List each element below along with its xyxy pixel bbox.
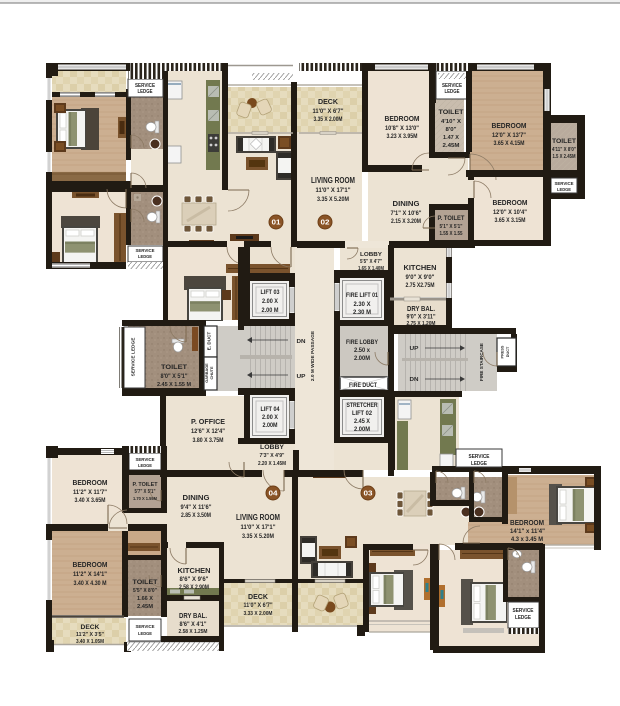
svg-text:4.3 x 3.45 M: 4.3 x 3.45 M — [511, 536, 543, 543]
svg-text:2.00 X: 2.00 X — [262, 415, 278, 421]
svg-text:2.15 X 3.20M: 2.15 X 3.20M — [391, 218, 421, 225]
svg-text:2.20 X 1.45M: 2.20 X 1.45M — [258, 461, 286, 467]
svg-text:SERVICE: SERVICE — [136, 248, 156, 254]
svg-text:12'0" X 13'7": 12'0" X 13'7" — [492, 132, 526, 139]
svg-text:04: 04 — [269, 491, 278, 498]
svg-text:CHUTE: CHUTE — [210, 366, 214, 380]
svg-text:2.45M: 2.45M — [443, 143, 460, 149]
svg-text:P. TOILET: P. TOILET — [438, 216, 465, 222]
svg-text:LEDGE: LEDGE — [557, 187, 572, 193]
svg-text:2.85 X 3.50M: 2.85 X 3.50M — [181, 512, 211, 519]
svg-text:UP: UP — [410, 346, 420, 352]
svg-text:DN: DN — [410, 377, 419, 383]
svg-text:4'11" X 8'0": 4'11" X 8'0" — [552, 147, 577, 153]
svg-text:SERVICE: SERVICE — [136, 624, 156, 630]
svg-text:LIVING ROOM: LIVING ROOM — [236, 513, 280, 522]
svg-text:P. OFFICE: P. OFFICE — [191, 417, 225, 426]
svg-text:DRY BAL.: DRY BAL. — [179, 613, 207, 620]
svg-text:8'0": 8'0" — [446, 127, 457, 133]
svg-text:DN: DN — [297, 339, 306, 345]
svg-text:SERVICE: SERVICE — [469, 454, 490, 460]
svg-text:5'1" X 5'1": 5'1" X 5'1" — [440, 224, 463, 230]
svg-text:1.5 X 2.45M: 1.5 X 2.45M — [553, 154, 576, 160]
svg-text:LIFT 03: LIFT 03 — [261, 289, 280, 296]
svg-text:7'1" X 10'6": 7'1" X 10'6" — [391, 210, 422, 217]
svg-text:FIRE LIFT 01: FIRE LIFT 01 — [346, 292, 378, 299]
svg-text:UP: UP — [297, 374, 307, 380]
svg-text:TOILET: TOILET — [161, 364, 188, 371]
svg-text:5'5" X 4'7": 5'5" X 4'7" — [360, 259, 382, 265]
svg-text:FIRE DUCT: FIRE DUCT — [349, 382, 377, 389]
svg-text:2.00M: 2.00M — [354, 356, 370, 362]
svg-text:BEDROOM: BEDROOM — [73, 560, 108, 569]
svg-text:DINING: DINING — [393, 199, 420, 208]
svg-text:11'0" X 6'7": 11'0" X 6'7" — [313, 108, 344, 115]
svg-text:LIVING ROOM: LIVING ROOM — [311, 176, 355, 185]
svg-text:2.58 X 1.25M: 2.58 X 1.25M — [179, 629, 208, 635]
svg-text:2.75 X 1.20M: 2.75 X 1.20M — [407, 321, 436, 327]
svg-text:3.33 X 2.00M: 3.33 X 2.00M — [244, 611, 273, 617]
svg-text:FIRE STAIRCASE: FIRE STAIRCASE — [479, 343, 484, 381]
svg-text:2.30 X: 2.30 X — [354, 302, 371, 308]
svg-text:3.40 X 3.65M: 3.40 X 3.65M — [75, 497, 106, 504]
svg-text:E. DUCT: E. DUCT — [207, 332, 212, 351]
svg-text:1.70 X 1.55M: 1.70 X 1.55M — [133, 496, 157, 502]
svg-text:2.45 X: 2.45 X — [354, 419, 370, 425]
svg-text:9'4" X 11'6": 9'4" X 11'6" — [181, 504, 212, 511]
svg-text:1.65 X 1.40M: 1.65 X 1.40M — [358, 266, 384, 272]
svg-text:03: 03 — [364, 491, 373, 498]
svg-text:DINING: DINING — [183, 493, 210, 502]
svg-text:5'5" X 8'0": 5'5" X 8'0" — [133, 588, 157, 594]
svg-text:3.35 X 2.00M: 3.35 X 2.00M — [314, 117, 343, 123]
svg-text:11'0" X 17'1": 11'0" X 17'1" — [241, 524, 276, 531]
svg-text:BEDROOM: BEDROOM — [492, 121, 527, 130]
svg-text:DRY BAL.: DRY BAL. — [407, 306, 435, 313]
svg-text:1.47 X: 1.47 X — [443, 135, 459, 141]
svg-text:10'8" X 13'0": 10'8" X 13'0" — [385, 125, 419, 132]
svg-text:7'3" X 4'9": 7'3" X 4'9" — [260, 453, 285, 459]
svg-text:11'0" X 6'7": 11'0" X 6'7" — [244, 603, 273, 609]
svg-text:DECK: DECK — [318, 97, 339, 106]
svg-text:2.00M: 2.00M — [354, 427, 370, 433]
svg-text:P. TOILET: P. TOILET — [133, 482, 158, 488]
svg-text:11'2" X 11'7": 11'2" X 11'7" — [73, 489, 107, 496]
svg-text:8'0" X 5'1": 8'0" X 5'1" — [161, 374, 188, 380]
svg-text:5'7" X 5'1": 5'7" X 5'1" — [135, 489, 157, 495]
svg-text:2.0 M WIDE PASSAGE: 2.0 M WIDE PASSAGE — [310, 330, 316, 381]
svg-text:9'0" X 9'0": 9'0" X 9'0" — [406, 274, 435, 281]
svg-text:2.50 x: 2.50 x — [354, 348, 371, 354]
svg-text:8'6" X 9'6": 8'6" X 9'6" — [180, 576, 209, 583]
svg-text:GARBAGE: GARBAGE — [205, 363, 209, 383]
svg-text:TOILET: TOILET — [439, 109, 464, 116]
svg-text:LEDGE: LEDGE — [138, 254, 153, 260]
svg-text:BEDROOM: BEDROOM — [73, 478, 108, 487]
svg-text:3.35 X 5.20M: 3.35 X 5.20M — [242, 533, 274, 540]
svg-text:BEDROOM: BEDROOM — [493, 198, 528, 207]
svg-text:LOBBY: LOBBY — [360, 252, 382, 258]
svg-text:SERVICE LEDGE: SERVICE LEDGE — [131, 337, 137, 377]
svg-text:01: 01 — [272, 220, 281, 227]
svg-text:2.45 X 1.55 M: 2.45 X 1.55 M — [157, 382, 191, 388]
svg-text:KITCHEN: KITCHEN — [178, 566, 211, 575]
svg-text:LEDGE: LEDGE — [445, 89, 461, 95]
svg-text:SERVICE: SERVICE — [555, 181, 575, 187]
svg-text:LEDGE: LEDGE — [138, 631, 153, 637]
svg-text:12'0" X 10'4": 12'0" X 10'4" — [493, 209, 527, 216]
svg-text:1.55 X 1.55: 1.55 X 1.55 — [440, 231, 463, 237]
svg-text:2.00 X: 2.00 X — [262, 299, 278, 305]
svg-text:14'1" x 11'4": 14'1" x 11'4" — [510, 528, 545, 535]
svg-text:LEDGE: LEDGE — [138, 89, 154, 95]
svg-text:11'0" X 17'1": 11'0" X 17'1" — [316, 187, 351, 194]
svg-text:3.40 X 1.05M: 3.40 X 1.05M — [76, 639, 104, 645]
svg-text:LEDGE: LEDGE — [515, 615, 531, 621]
svg-text:11'2" X 3'5": 11'2" X 3'5" — [76, 632, 104, 638]
svg-text:3.65 X 4.15M: 3.65 X 4.15M — [494, 140, 525, 147]
svg-text:DECK: DECK — [81, 624, 100, 631]
svg-text:TOILET: TOILET — [133, 579, 158, 586]
svg-text:LOBBY: LOBBY — [260, 444, 285, 451]
svg-text:3.80 X 3.75M: 3.80 X 3.75M — [193, 437, 224, 444]
svg-text:3.23 X 3.95M: 3.23 X 3.95M — [387, 133, 418, 140]
svg-text:2.00 M: 2.00 M — [262, 308, 279, 314]
svg-text:LEDGE: LEDGE — [138, 463, 153, 469]
svg-text:SERVICE: SERVICE — [136, 457, 156, 463]
svg-text:BEDROOM: BEDROOM — [385, 114, 420, 123]
svg-text:STRETCHER: STRETCHER — [347, 402, 378, 409]
svg-text:FIRE LOBBY: FIRE LOBBY — [346, 339, 378, 346]
svg-text:2.45M: 2.45M — [137, 604, 153, 610]
svg-text:PRESS: PRESS — [501, 345, 505, 358]
svg-text:4'10" X: 4'10" X — [441, 119, 461, 125]
svg-text:LEDGE: LEDGE — [471, 461, 487, 467]
svg-text:1.66 X: 1.66 X — [137, 596, 153, 602]
svg-text:3.35 X 5.20M: 3.35 X 5.20M — [317, 196, 349, 203]
svg-text:2.00M: 2.00M — [263, 423, 278, 429]
svg-text:9'0" X 3'11": 9'0" X 3'11" — [407, 315, 436, 321]
svg-text:3.40 X 4.30 M: 3.40 X 4.30 M — [74, 580, 107, 587]
svg-text:12'6" X 12'4": 12'6" X 12'4" — [191, 428, 225, 435]
svg-text:DUCT: DUCT — [506, 346, 510, 357]
svg-text:2.30 M: 2.30 M — [353, 310, 371, 316]
svg-text:8'6" X 4'1": 8'6" X 4'1" — [180, 622, 207, 628]
svg-text:TOILET: TOILET — [552, 138, 576, 145]
svg-text:11'2" X 14'1": 11'2" X 14'1" — [73, 571, 107, 578]
svg-text:2.75 X2.75M: 2.75 X2.75M — [406, 282, 435, 289]
svg-text:DECK: DECK — [248, 592, 269, 601]
svg-text:3.65 X 3.15M: 3.65 X 3.15M — [495, 217, 526, 224]
svg-text:2.58 X 2.90M: 2.58 X 2.90M — [179, 584, 209, 591]
svg-text:KITCHEN: KITCHEN — [404, 263, 437, 272]
svg-text:SERVICE: SERVICE — [513, 608, 534, 614]
svg-text:BEDROOM: BEDROOM — [510, 518, 544, 527]
svg-text:LIFT 02: LIFT 02 — [352, 410, 373, 417]
svg-text:LIFT 04: LIFT 04 — [261, 406, 280, 413]
svg-text:02: 02 — [321, 220, 330, 227]
